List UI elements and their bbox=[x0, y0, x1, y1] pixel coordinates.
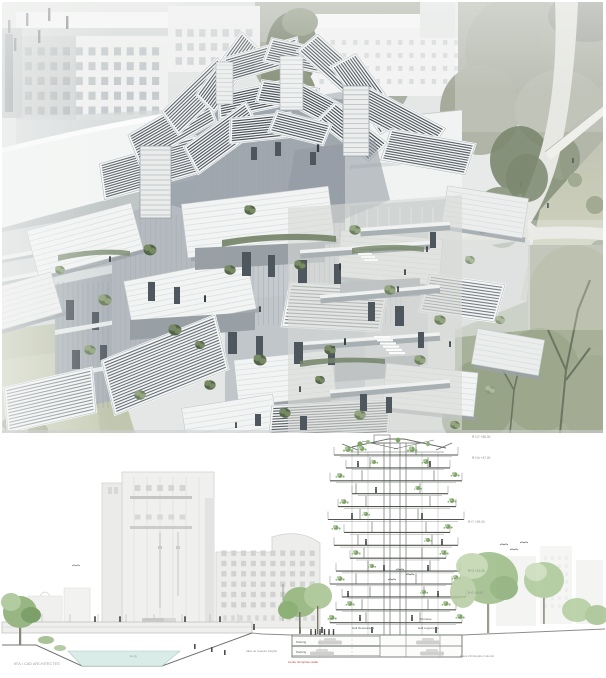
svg-text:R+14 +47.00: R+14 +47.00 bbox=[472, 456, 491, 460]
svg-text:Hall Restaurants: Hall Restaurants bbox=[352, 626, 375, 630]
svg-text:Place Christophe Colomb: Place Christophe Colomb bbox=[460, 654, 494, 658]
svg-text:Allée de maestro Gisyčle: Allée de maestro Gisyčle bbox=[246, 649, 277, 653]
svg-text:R+1 +6.00: R+1 +6.00 bbox=[468, 591, 483, 595]
svg-text:R+7 +25.00: R+7 +25.00 bbox=[468, 520, 485, 524]
svg-text:fil°A • CAD ARCHITECTES: fil°A • CAD ARCHITECTES bbox=[14, 662, 60, 666]
svg-text:Limite d’emprise réelle: Limite d’emprise réelle bbox=[288, 660, 318, 664]
svg-text:la vig: la vig bbox=[130, 654, 137, 658]
svg-text:Parking: Parking bbox=[296, 650, 307, 654]
svg-text:Hall Logements: Hall Logements bbox=[418, 626, 439, 630]
svg-text:Terrasse: Terrasse bbox=[420, 617, 432, 621]
svg-text:R+3 +12.00: R+3 +12.00 bbox=[468, 569, 485, 573]
svg-text:R+17 +56.00: R+17 +56.00 bbox=[472, 435, 491, 439]
svg-text:Parking: Parking bbox=[296, 640, 307, 644]
